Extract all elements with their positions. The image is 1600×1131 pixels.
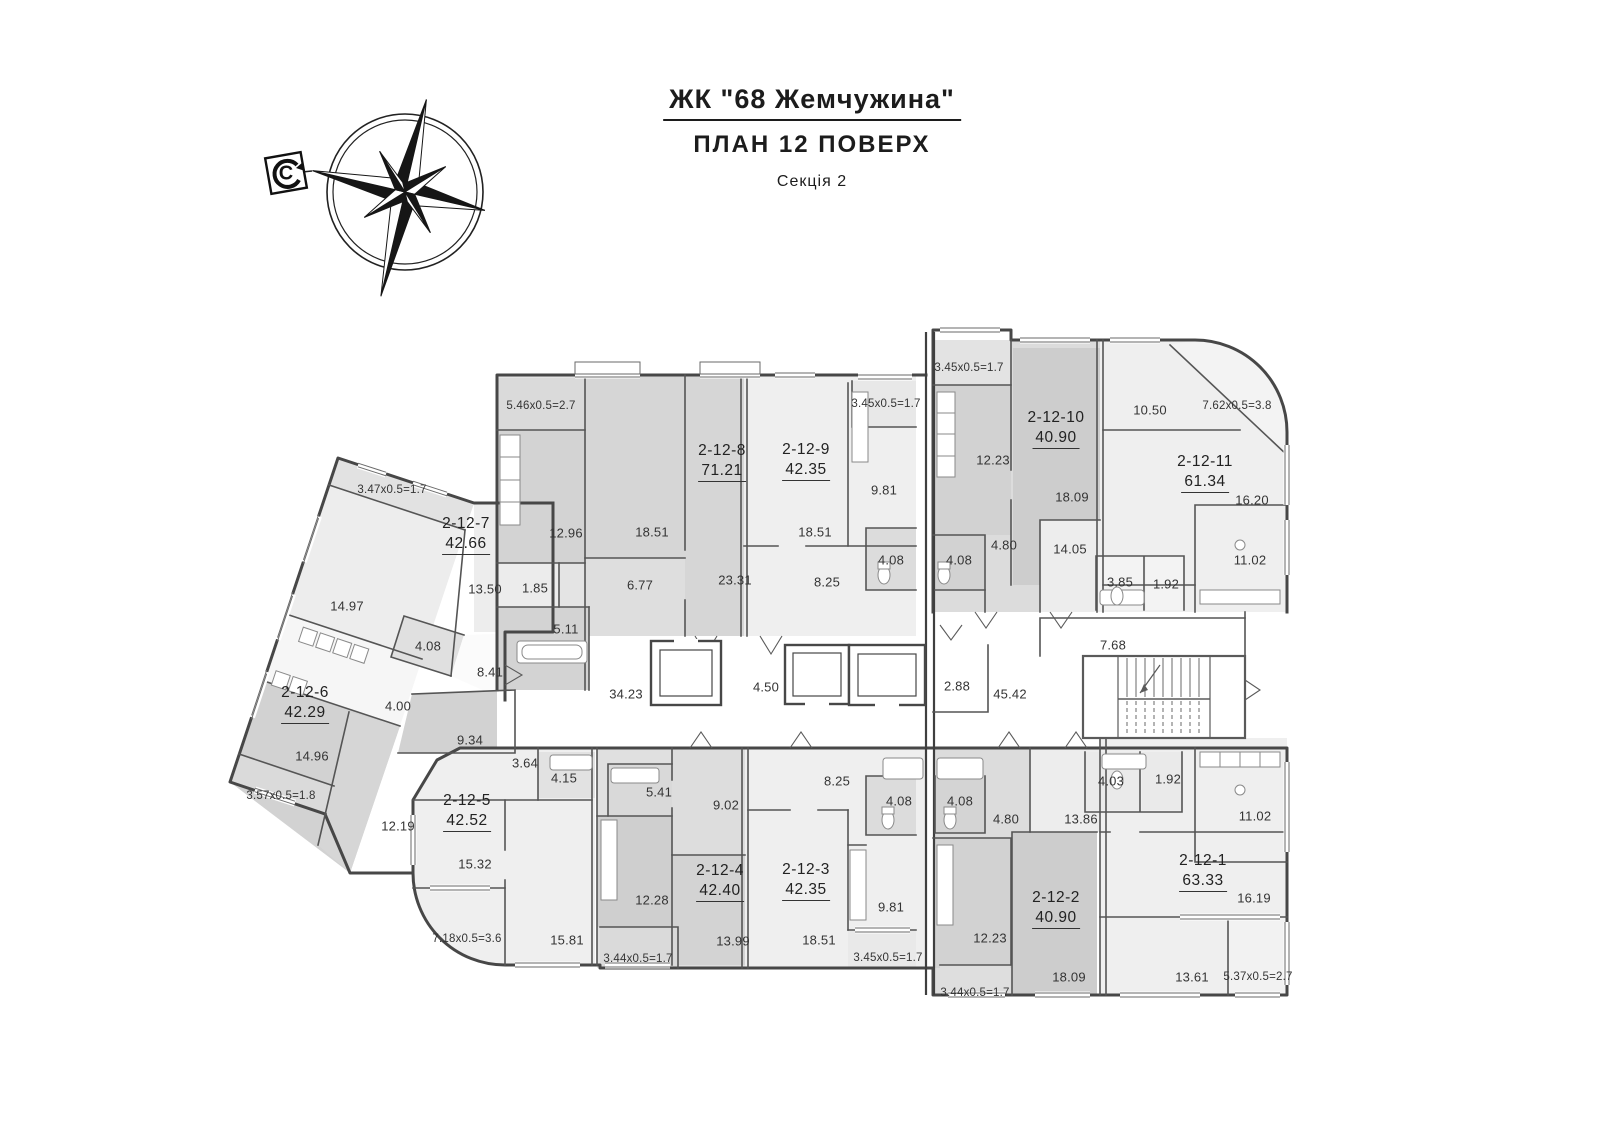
room-area-label: 18.09: [1052, 970, 1086, 985]
balcony-area-label: 3.45x0.5=1.7: [853, 952, 922, 964]
apartment-total-area: 42.66: [442, 534, 489, 555]
balcony-area-label: 3.57x0.5=1.8: [246, 790, 315, 802]
room-area-label: 14.97: [330, 599, 364, 614]
apartment-label-2-12-1: 2-12-163.33: [1179, 852, 1227, 892]
apartment-number: 2-12-3: [782, 861, 830, 879]
compass-north-label: С: [279, 163, 293, 186]
room-area-label: 1.85: [522, 581, 548, 596]
apartment-label-2-12-6: 2-12-642.29: [281, 684, 329, 724]
balcony-area-label: 3.47x0.5=1.7: [357, 484, 426, 496]
room-area-label: 18.51: [635, 525, 669, 540]
apartment-number: 2-12-6: [281, 684, 329, 702]
apartment-number: 2-12-2: [1032, 889, 1080, 907]
common-area-label: 2.88: [944, 679, 970, 694]
room-area-label: 4.80: [991, 538, 1017, 553]
room-area-label: 13.86: [1064, 812, 1098, 827]
room-area-label: 18.09: [1055, 490, 1089, 505]
apartment-label-2-12-8: 2-12-871.21: [698, 442, 746, 482]
room-area-label: 16.20: [1235, 493, 1269, 508]
room-area-label: 12.19: [381, 819, 415, 834]
apartment-total-area: 42.40: [696, 881, 743, 902]
room-area-label: 1.92: [1153, 577, 1179, 592]
balcony-area-label: 3.45x0.5=1.7: [934, 362, 1003, 374]
apartment-total-area: 42.35: [782, 460, 829, 481]
floor-plan-page: ЖК "68 Жемчужина" ПЛАН 12 ПОВЕРХ Секція …: [0, 0, 1600, 1131]
room-area-label: 12.23: [976, 453, 1010, 468]
room-area-label: 9.02: [713, 798, 739, 813]
balcony-area-label: 3.45x0.5=1.7: [851, 398, 920, 410]
room-area-label: 4.08: [415, 639, 441, 654]
room-area-label: 5.41: [646, 785, 672, 800]
room-area-label: 12.96: [549, 526, 583, 541]
room-area-label: 9.81: [878, 900, 904, 915]
balcony-area-label: 7.62x0.5=3.8: [1202, 400, 1271, 412]
room-area-label: 14.96: [295, 749, 329, 764]
apartment-total-area: 40.90: [1032, 428, 1079, 449]
room-area-label: 16.19: [1237, 891, 1271, 906]
apartment-number: 2-12-10: [1028, 409, 1085, 427]
apartment-label-2-12-5: 2-12-542.52: [443, 792, 491, 832]
apartment-total-area: 42.35: [782, 880, 829, 901]
room-area-label: 4.80: [993, 812, 1019, 827]
room-area-label: 8.41: [477, 665, 503, 680]
apartment-number: 2-12-11: [1177, 453, 1233, 471]
room-area-label: 12.28: [635, 893, 669, 908]
common-area-label: 34.23: [609, 687, 643, 702]
balcony-area-label: 7.18x0.5=3.6: [432, 933, 501, 945]
common-area-label: 45.42: [993, 687, 1027, 702]
balcony-area-label: 3.44x0.5=1.7: [940, 987, 1009, 999]
balcony-area-label: 3.44x0.5=1.7: [603, 953, 672, 965]
apartment-label-2-12-9: 2-12-942.35: [782, 441, 830, 481]
apartment-total-area: 61.34: [1181, 472, 1228, 493]
room-area-label: 15.32: [458, 857, 492, 872]
common-area-label: 4.50: [753, 680, 779, 695]
room-area-label: 8.25: [814, 575, 840, 590]
room-area-label: 4.08: [878, 553, 904, 568]
room-area-label: 13.50: [468, 582, 502, 597]
room-area-label: 12.23: [973, 931, 1007, 946]
room-area-label: 18.51: [802, 933, 836, 948]
room-area-label: 23.31: [718, 573, 752, 588]
apartment-total-area: 71.21: [698, 461, 745, 482]
room-area-label: 15.81: [550, 933, 584, 948]
room-area-label: 10.50: [1133, 403, 1167, 418]
room-area-label: 3.64: [512, 756, 538, 771]
room-area-label: 4.08: [947, 794, 973, 809]
room-area-label: 1.92: [1155, 772, 1181, 787]
room-area-label: 6.77: [627, 578, 653, 593]
apartment-total-area: 63.33: [1179, 871, 1226, 892]
room-area-label: 9.34: [457, 733, 483, 748]
apartment-label-2-12-4: 2-12-442.40: [696, 862, 744, 902]
room-area-label: 13.99: [716, 934, 750, 949]
room-area-label: 3.85: [1107, 575, 1133, 590]
room-area-label: 14.05: [1053, 542, 1087, 557]
balcony-area-label: 5.37x0.5=2.7: [1223, 971, 1292, 983]
apartment-number: 2-12-5: [443, 792, 491, 810]
room-area-label: 11.02: [1239, 809, 1272, 824]
room-area-label: 9.81: [871, 483, 897, 498]
apartment-number: 2-12-8: [698, 442, 746, 460]
room-area-label: 11.02: [1234, 553, 1267, 568]
room-area-label: 4.15: [551, 771, 577, 786]
plan-labels-layer: 2-12-163.3313.864.031.9211.0216.1913.615…: [0, 0, 1600, 1131]
apartment-label-2-12-3: 2-12-342.35: [782, 861, 830, 901]
room-area-label: 4.08: [946, 553, 972, 568]
room-area-label: 5.11: [553, 622, 578, 637]
balcony-area-label: 5.46x0.5=2.7: [506, 400, 575, 412]
room-area-label: 18.51: [798, 525, 832, 540]
room-area-label: 13.61: [1175, 970, 1209, 985]
apartment-label-2-12-10: 2-12-1040.90: [1028, 409, 1085, 449]
apartment-number: 2-12-9: [782, 441, 830, 459]
room-area-label: 4.03: [1098, 774, 1124, 789]
apartment-total-area: 42.29: [281, 703, 328, 724]
room-area-label: 8.25: [824, 774, 850, 789]
apartment-total-area: 42.52: [443, 811, 490, 832]
apartment-number: 2-12-4: [696, 862, 744, 880]
apartment-label-2-12-7: 2-12-742.66: [442, 515, 490, 555]
apartment-label-2-12-11: 2-12-1161.34: [1177, 453, 1233, 493]
apartment-total-area: 40.90: [1032, 908, 1079, 929]
common-area-label: 7.68: [1100, 638, 1126, 653]
apartment-number: 2-12-7: [442, 515, 490, 533]
apartment-label-2-12-2: 2-12-240.90: [1032, 889, 1080, 929]
room-area-label: 4.00: [385, 699, 411, 714]
apartment-number: 2-12-1: [1179, 852, 1227, 870]
room-area-label: 4.08: [886, 794, 912, 809]
